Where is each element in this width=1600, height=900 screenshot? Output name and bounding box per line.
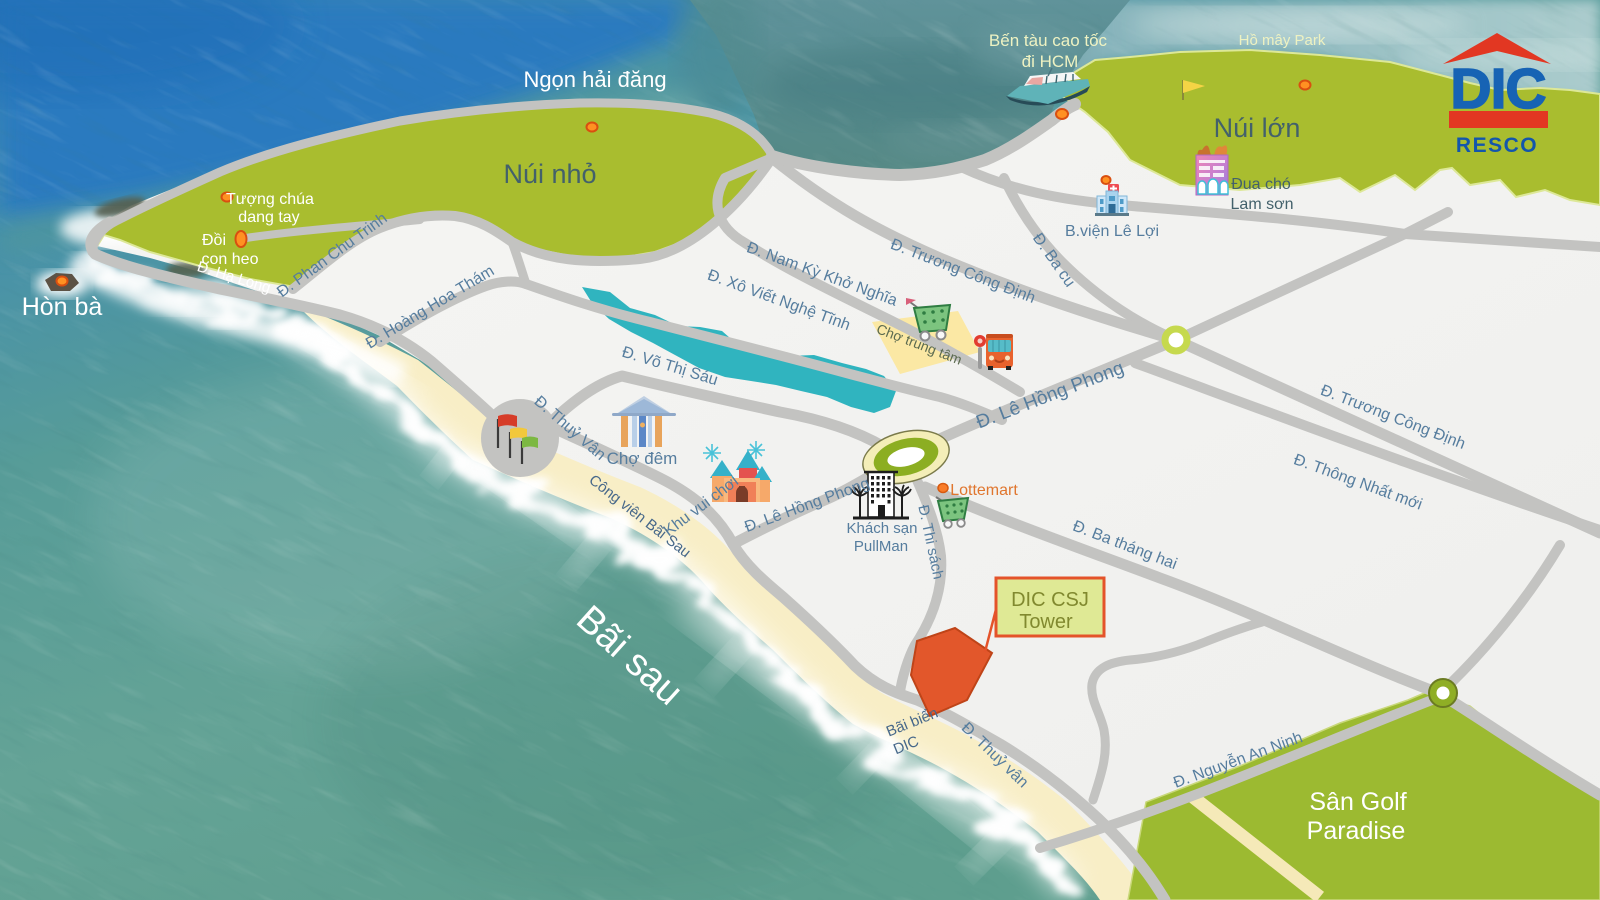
svg-text:DIC: DIC: [1450, 57, 1545, 121]
svg-text:Hòn bà: Hòn bà: [22, 293, 103, 321]
svg-text:Núi nhỏ: Núi nhỏ: [503, 159, 596, 189]
svg-text:Bến tàu cao tốc: Bến tàu cao tốc: [989, 31, 1108, 50]
svg-text:Tower: Tower: [1019, 611, 1073, 633]
svg-text:Tượng chúa: Tượng chúa: [226, 191, 314, 208]
svg-text:B.viện Lê Lợi: B.viện Lê Lợi: [1065, 223, 1159, 240]
svg-text:Chợ đêm: Chợ đêm: [607, 449, 678, 468]
svg-text:Lam sơn: Lam sơn: [1231, 196, 1294, 213]
svg-text:Đua chó: Đua chó: [1231, 176, 1291, 193]
svg-text:Lottemart: Lottemart: [950, 482, 1018, 499]
svg-text:RESCO: RESCO: [1456, 134, 1538, 157]
svg-text:đi HCM: đi HCM: [1022, 52, 1079, 71]
svg-text:Khách sạn: Khách sạn: [847, 520, 918, 537]
svg-text:Núi lớn: Núi lớn: [1214, 113, 1301, 143]
svg-text:dang tay: dang tay: [238, 209, 299, 226]
svg-text:Đồi: Đồi: [202, 232, 226, 249]
svg-text:DIC CSJ: DIC CSJ: [1011, 589, 1089, 611]
svg-text:Paradise: Paradise: [1307, 817, 1406, 845]
svg-text:PullMan: PullMan: [854, 538, 908, 555]
svg-text:Ngọn hải đăng: Ngọn hải đăng: [523, 67, 666, 92]
svg-text:Hồ mây Park: Hồ mây Park: [1239, 32, 1326, 49]
svg-text:Sân Golf: Sân Golf: [1309, 788, 1406, 816]
